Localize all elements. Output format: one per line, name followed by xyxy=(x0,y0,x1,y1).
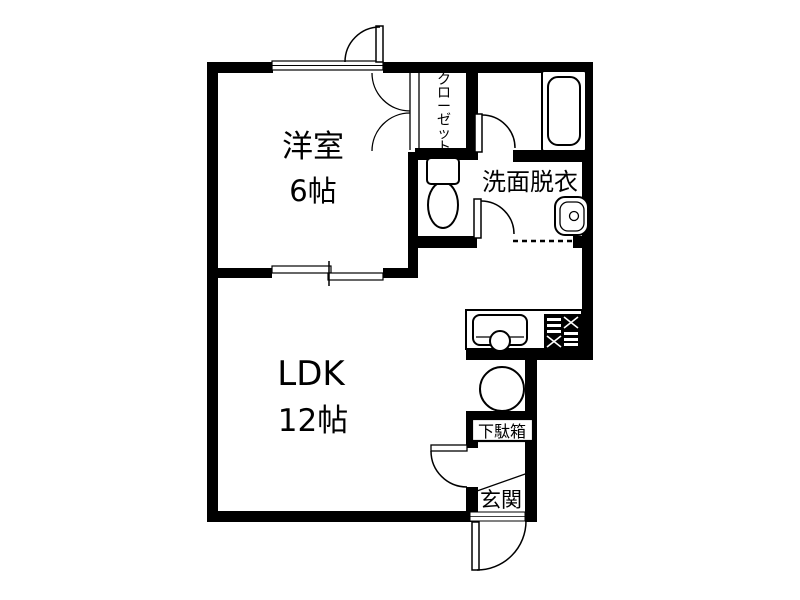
stove-stripe xyxy=(547,318,561,321)
sliding-door-panel-right xyxy=(328,273,383,280)
sliding-door-panel-left xyxy=(272,266,331,273)
bathtub-inner xyxy=(548,77,580,145)
toilet-tank xyxy=(427,158,459,184)
top-door-leaf xyxy=(376,26,383,62)
round-table-icon xyxy=(480,367,524,411)
closet-label: クローゼット xyxy=(437,72,451,156)
closet-door-arc-upper xyxy=(372,73,410,111)
kitchen-faucet xyxy=(490,331,510,351)
western-room-label: 洋室 xyxy=(282,129,344,165)
wall-toilet-bottom xyxy=(408,236,477,248)
stove-stripe xyxy=(564,343,578,346)
shoe-cabinet-label: 下駄箱 xyxy=(478,422,526,441)
ldk-label: LDK xyxy=(277,354,346,394)
stove-stripe xyxy=(547,324,561,327)
wall-bottom xyxy=(207,511,471,522)
entrance-label: 玄関 xyxy=(480,488,522,512)
entrance-door-swing-arc xyxy=(477,521,526,570)
wall-toilet-left xyxy=(408,152,418,278)
stove-icon xyxy=(544,314,581,348)
walls xyxy=(207,62,593,522)
western-room-size: 6帖 xyxy=(289,174,336,208)
washbasin-drain xyxy=(570,212,579,221)
washroom-door-swing-arc xyxy=(481,201,514,234)
stove-stripe xyxy=(564,338,578,341)
bathroom-door-leaf xyxy=(475,114,482,152)
washroom-door-leaf xyxy=(474,199,481,238)
top-door-swing-arc xyxy=(345,27,380,62)
floor-plan-canvas: 洋室 6帖 LDK 12帖 クローゼット 洗面脱衣 下駄箱 玄関 xyxy=(0,0,800,600)
bathroom-door-swing-arc xyxy=(482,115,515,148)
toilet-icon xyxy=(428,182,458,228)
ldk-size: 12帖 xyxy=(278,403,348,439)
ldk-hall-door-leaf xyxy=(431,445,467,451)
floor-plan-drawing: 洋室 6帖 LDK 12帖 クローゼット 洗面脱衣 下駄箱 玄関 xyxy=(0,0,800,600)
washroom-label: 洗面脱衣 xyxy=(482,168,578,196)
wall-washroom-bottom-right xyxy=(573,236,593,248)
closet-door-arc-lower xyxy=(372,113,410,151)
stove-stripe xyxy=(547,330,561,333)
ldk-hall-door-swing-arc xyxy=(431,451,467,487)
wall-left xyxy=(207,62,218,522)
wall-room-ldk-left xyxy=(218,268,272,278)
stove-stripe xyxy=(564,332,578,335)
entrance-door-leaf xyxy=(472,522,479,570)
